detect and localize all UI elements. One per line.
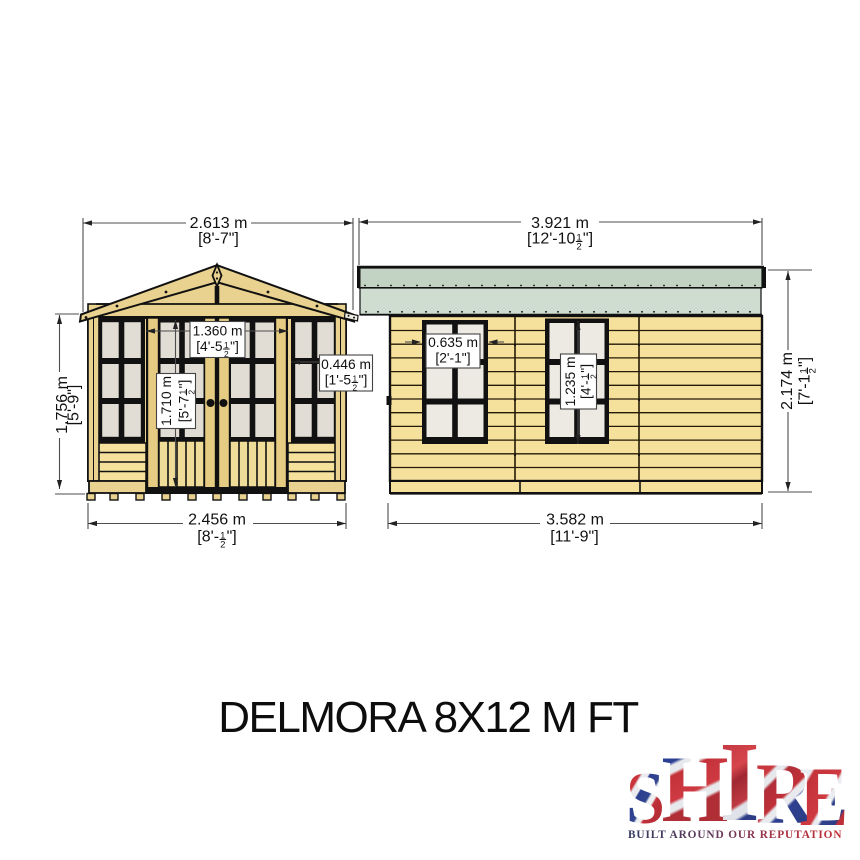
svg-text:"]: "] [583, 231, 593, 248]
svg-text:2.613 m: 2.613 m [190, 215, 248, 232]
svg-text:2.456 m: 2.456 m [188, 512, 246, 529]
svg-text:2: 2 [807, 368, 818, 373]
svg-text:[8'-7"]: [8'-7"] [198, 231, 239, 248]
svg-text:"]: "] [230, 339, 239, 354]
svg-text:2: 2 [186, 390, 196, 395]
svg-text:"]: "] [359, 373, 368, 388]
svg-text:2: 2 [220, 539, 225, 550]
svg-text:1.235 m: 1.235 m [563, 357, 578, 407]
svg-text:BUILT AROUND OUR REPUTATION: BUILT AROUND OUR REPUTATION [628, 829, 842, 841]
svg-text:[5'-9"]: [5'-9"] [66, 385, 83, 426]
svg-text:3.582 m: 3.582 m [546, 512, 604, 529]
svg-text:2: 2 [224, 349, 229, 359]
svg-text:2: 2 [352, 382, 357, 392]
svg-text:[4'-: [4'- [579, 380, 594, 399]
svg-text:[7'-1: [7'-1 [797, 374, 814, 405]
svg-text:I: I [719, 718, 759, 845]
svg-text:[12'-10: [12'-10 [527, 231, 576, 248]
svg-text:2: 2 [576, 241, 581, 252]
svg-text:"]: "] [177, 380, 192, 389]
svg-text:1.360 m: 1.360 m [193, 324, 243, 339]
svg-text:2.174 m: 2.174 m [779, 352, 796, 410]
svg-text:S: S [626, 757, 665, 839]
svg-text:H: H [662, 736, 729, 842]
svg-text:DELMORA 8X12 M FT: DELMORA 8X12 M FT [218, 693, 638, 742]
svg-text:[4'-5: [4'-5 [196, 339, 223, 354]
svg-text:[8'-: [8'- [197, 529, 219, 546]
svg-text:2: 2 [588, 374, 598, 379]
svg-text:[11'-9"]: [11'-9"] [550, 529, 598, 546]
svg-text:"]: "] [579, 364, 594, 373]
svg-text:[2'-1"]: [2'-1"] [435, 351, 470, 366]
svg-text:3.921 m: 3.921 m [531, 215, 589, 232]
svg-text:"]: "] [227, 529, 237, 546]
svg-text:[5'-7: [5'-7 [177, 396, 192, 422]
svg-text:"]: "] [797, 357, 814, 367]
svg-text:0.446 m: 0.446 m [321, 357, 371, 372]
svg-text:0.635 m: 0.635 m [428, 335, 478, 350]
svg-text:[1'-5: [1'-5 [325, 373, 352, 388]
svg-text:1.710 m: 1.710 m [159, 376, 174, 426]
